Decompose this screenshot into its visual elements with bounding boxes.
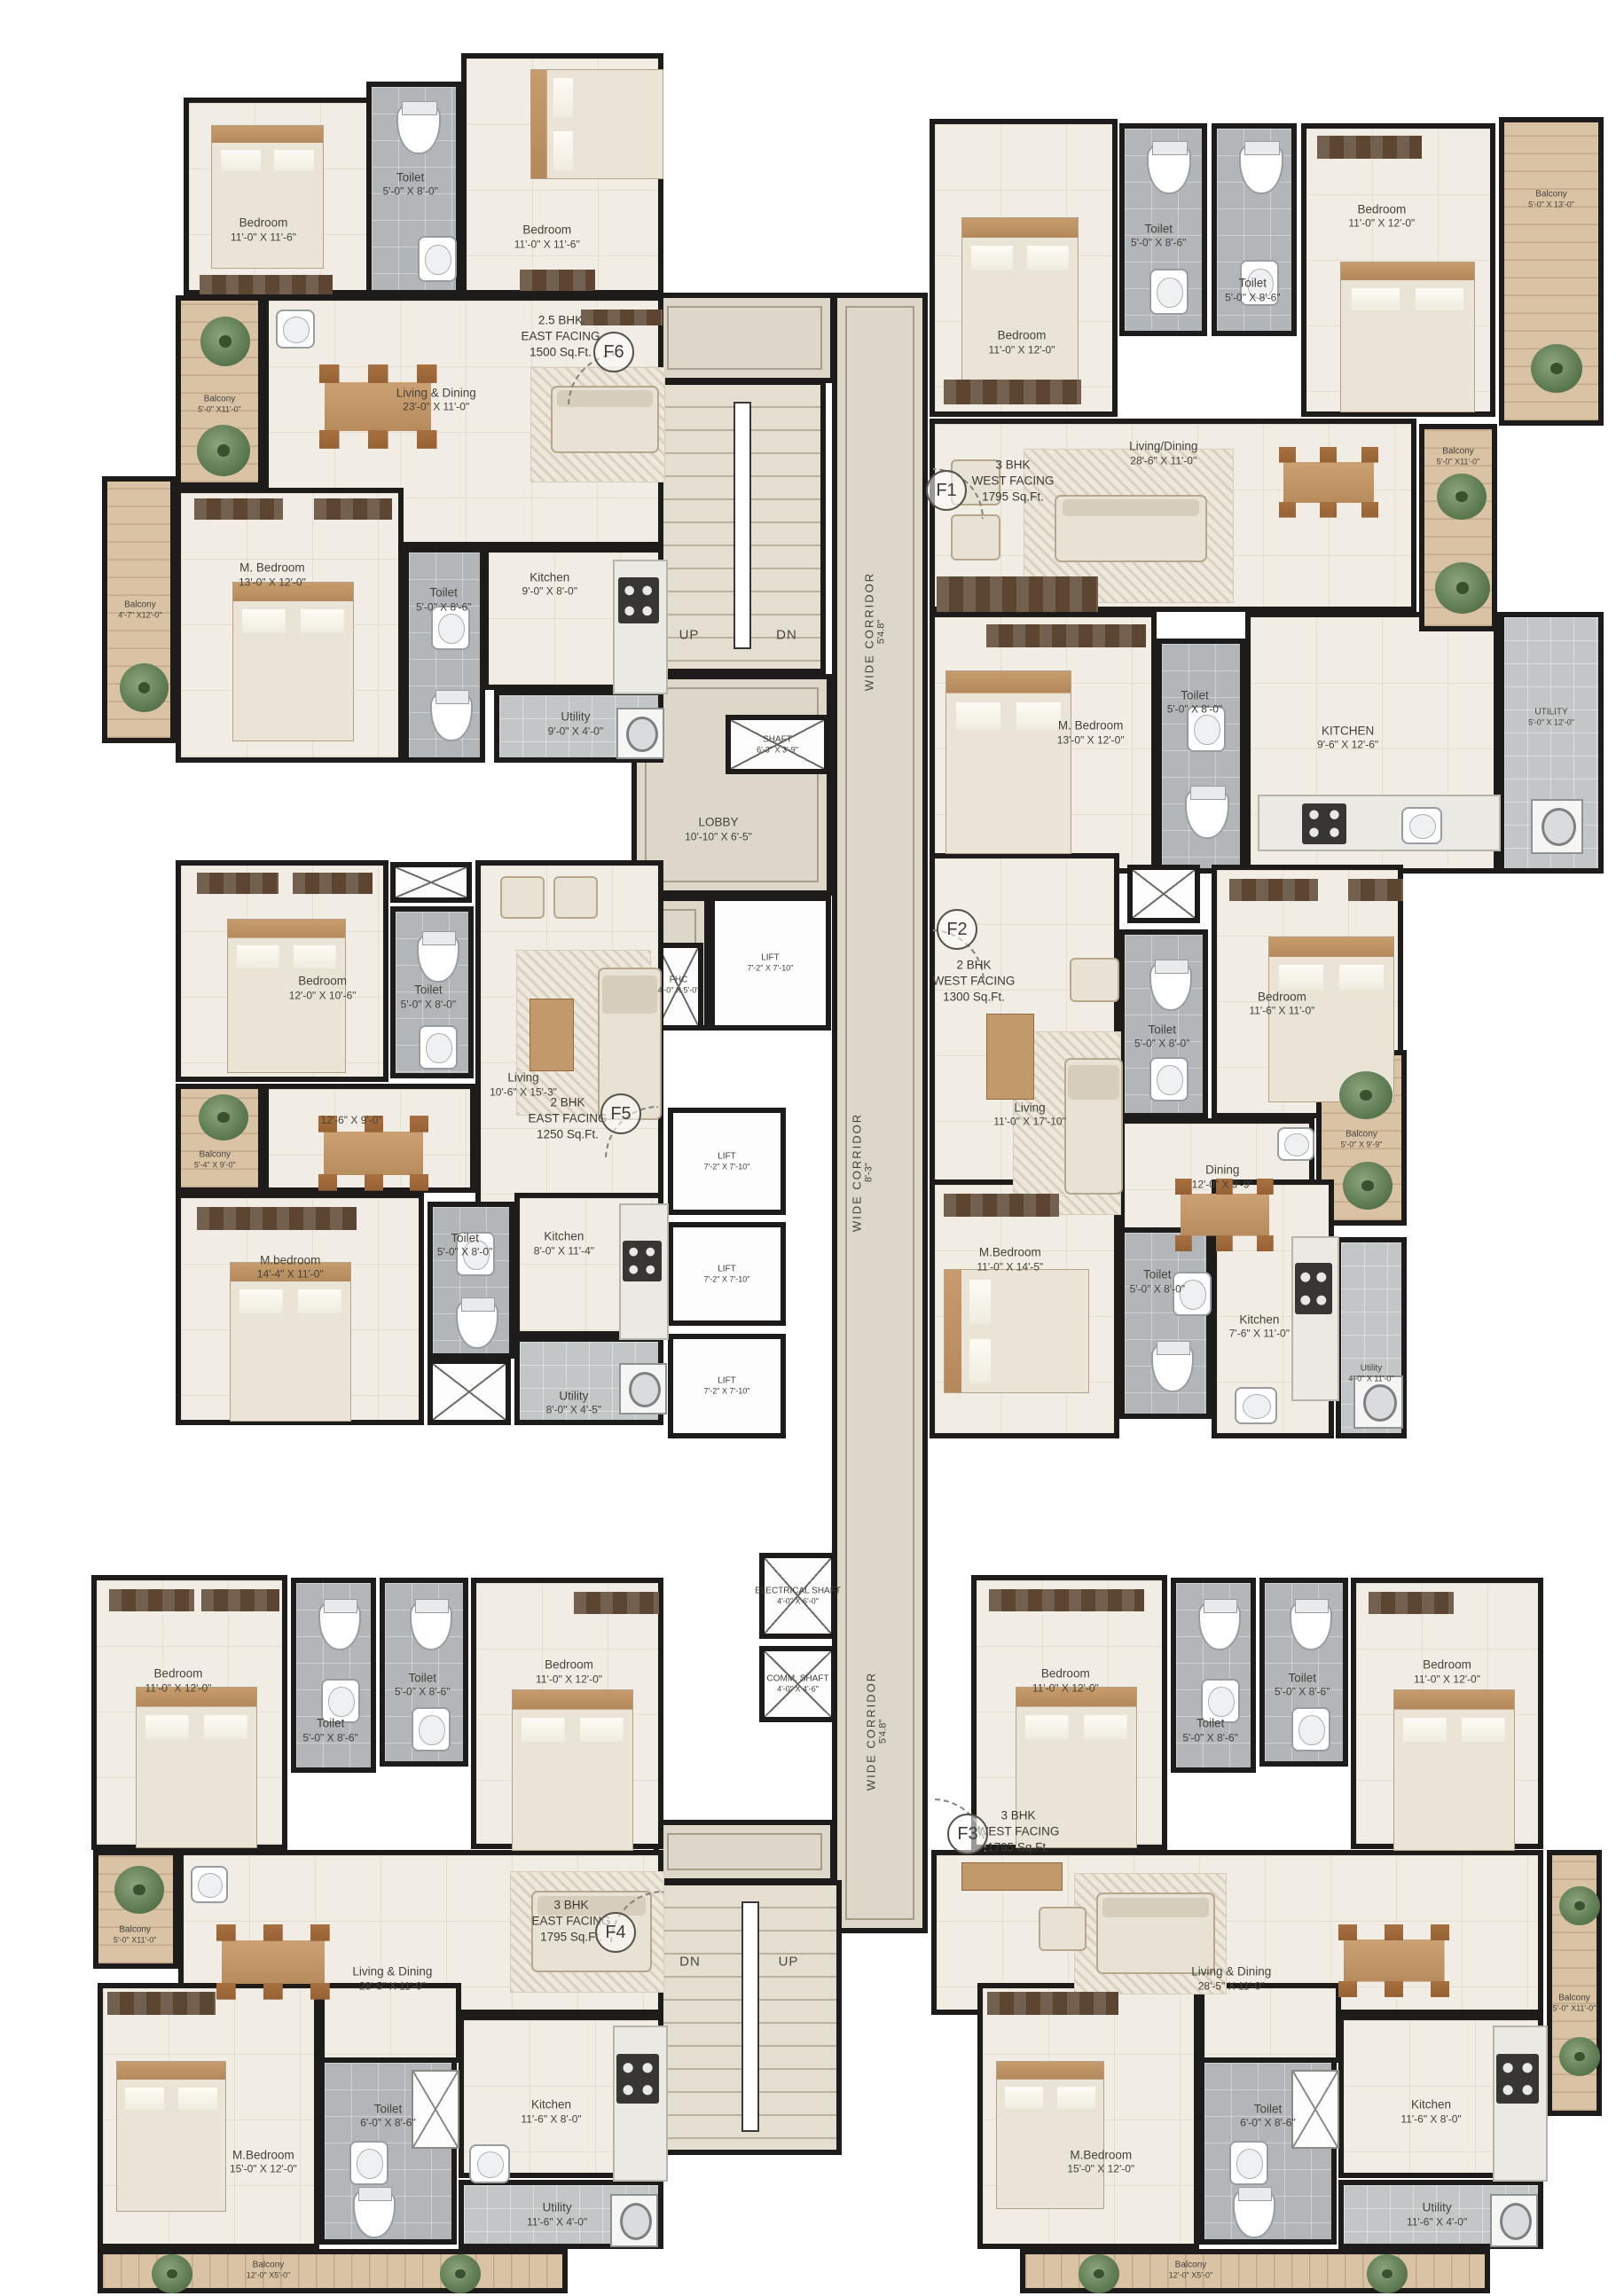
f5-toilet-1-name: Toilet — [401, 983, 456, 999]
plant-icon — [197, 425, 250, 476]
f2-toilet-2-dims: 5'-0" X 8'-0" — [1130, 1282, 1185, 1297]
corridor-top — [654, 293, 836, 383]
f2-balcony-name: Balcony — [1341, 1129, 1383, 1140]
plant-icon — [1339, 1071, 1393, 1119]
comm-shaft: COMM. SHAFT4'-0" X 4'-6" — [759, 1646, 836, 1722]
flat-f5-badge: F5 — [600, 1093, 641, 1134]
stairs-bottom — [655, 1880, 842, 2155]
f4-balcony-1: Balcony5'-0" X11'-0" — [93, 1850, 178, 1969]
bed-icon — [232, 582, 354, 741]
f1-bedroom-2-label: Bedroom11'-0" X 12'-0" — [1348, 201, 1415, 231]
f3-bedroom-2: Bedroom11'-0" X 12'-0" — [1351, 1578, 1543, 1849]
lift-2-name: LIFT — [704, 1263, 750, 1274]
up-label: UP — [679, 628, 700, 643]
counter-icon — [1493, 2026, 1548, 2182]
f4-bedroom-1-label: Bedroom11'-0" X 12'-0" — [145, 1666, 211, 1696]
f3-bedroom-1-dims: 11'-0" X 12'-0" — [1032, 1681, 1099, 1696]
f3-toilet-2-name: Toilet — [1275, 1670, 1330, 1686]
electrical-shaft-name: ELECTRICAL SHAFT — [755, 1585, 841, 1596]
f6-toilet-2-label: Toilet5'-0" X 8'-6" — [416, 585, 471, 615]
ward-icon — [197, 1207, 357, 1230]
f1-toilet-2-name: Toilet — [1225, 276, 1280, 292]
wc-icon — [1147, 141, 1191, 194]
f4-living-dining-label: Living & Dining28'-5" X 11'-0" — [352, 1964, 432, 1994]
plant-icon — [1435, 562, 1490, 614]
bed-icon — [116, 2061, 226, 2212]
ward-icon — [314, 498, 392, 520]
f2-toilet-1-name: Toilet — [1134, 1022, 1189, 1038]
f6-toilet-1-dims: 5'-0" X 8'-0" — [382, 185, 437, 200]
f6-m-bedroom-label: M. Bedroom13'-0" X 12'-0" — [239, 560, 306, 590]
f2-dining-label: Dining12'-0" X 9'-9" — [1192, 1163, 1253, 1192]
f4-bedroom-1-dims: 11'-0" X 12'-0" — [145, 1681, 211, 1696]
f3-living-dining-dims: 28'-5" X 11'-0" — [1191, 1979, 1271, 1994]
f3-toilet-2-label: Toilet5'-0" X 8'-6" — [1275, 1670, 1330, 1699]
plant-icon — [200, 317, 250, 366]
ward-icon — [293, 873, 373, 894]
f3-balcony-1-label: Balcony5'-0" X11'-0" — [1553, 1993, 1597, 2015]
f6-living-dining-dims: 23'-0" X 11'-0" — [396, 400, 476, 414]
f5-bedroom: Bedroom12'-0" X 10'-6" — [176, 860, 388, 1082]
f4-bedroom-2-dims: 11'-0" X 12'-0" — [536, 1673, 602, 1687]
f1-toilet-1-label: Toilet5'-0" X 8'-6" — [1131, 221, 1186, 250]
f5-dining-dims: 12'-6" X 9'-0" — [320, 1114, 381, 1128]
f3-kitchen-dims: 11'-6" X 8'-0" — [1400, 2112, 1461, 2127]
f4-kitchen: Kitchen11'-6" X 8'-0" — [459, 2015, 663, 2178]
lobby-dims: 10'-10" X 6'-5" — [685, 830, 752, 844]
f4-toilet-3-dims: 6'-0" X 8'-6" — [360, 2117, 415, 2131]
f6-bedroom-2: Bedroom11'-0" X 11'-6" — [461, 53, 663, 295]
f5-m-bedroom: M.bedroom14'-4" X 11'-0" — [176, 1193, 424, 1425]
bed-icon — [1393, 1689, 1515, 1851]
flat-f6-info: 2.5 BHKEAST FACING1500 Sq.Ft. — [521, 313, 600, 362]
f6-bedroom-2-label: Bedroom11'-0" X 11'-6" — [514, 222, 580, 251]
f6-toilet-2-name: Toilet — [416, 585, 471, 601]
f6-balcony-2-label: Balcony4'-7" X12'-0" — [118, 599, 161, 621]
stove-icon — [1302, 803, 1346, 844]
lift-top-name: LIFT — [748, 952, 794, 964]
flat-f5-info: 2 BHKEAST FACING1250 Sq.Ft. — [528, 1095, 607, 1144]
f2-toilet-1: Toilet5'-0" X 8'-0" — [1119, 929, 1208, 1118]
wood-icon — [530, 999, 574, 1071]
shower-icon — [412, 2070, 459, 2149]
f4-bedroom-2-label: Bedroom11'-0" X 12'-0" — [536, 1657, 602, 1686]
f6-bedroom-1-dims: 11'-0" X 11'-6" — [231, 231, 296, 245]
f3-bedroom-1-label: Bedroom11'-0" X 12'-0" — [1032, 1666, 1099, 1696]
f4-balcony-2-dims: 12'-0" X5'-0" — [247, 2271, 290, 2282]
sink-icon — [419, 1025, 458, 1070]
sofa-icon — [1055, 495, 1207, 562]
comm-shaft-name: COMM. SHAFT — [767, 1673, 829, 1685]
plant-icon — [1559, 1886, 1600, 1925]
f4-bedroom-1-name: Bedroom — [145, 1666, 211, 1682]
f2-m-bedroom: M.Bedroom11'-0" X 14'-5" — [930, 1179, 1119, 1438]
f3-toilet-2: Toilet5'-0" X 8'-6" — [1259, 1578, 1348, 1767]
ward-icon — [989, 1589, 1144, 1611]
f4-m-bedroom-dims: 15'-0" X 12'-0" — [230, 2163, 297, 2177]
f1-balcony-top-label: Balcony5'-0" X 13'-0" — [1528, 189, 1574, 211]
plant-icon — [1531, 344, 1582, 393]
f3-living-dining-label: Living & Dining28'-5" X 11'-0" — [1191, 1964, 1271, 1994]
f6-bedroom-1-label: Bedroom11'-0" X 11'-6" — [231, 215, 296, 245]
comm-shaft-label: COMM. SHAFT4'-0" X 4'-6" — [767, 1673, 829, 1696]
f4-utility-dims: 11'-6" X 4'-0" — [527, 2215, 587, 2229]
f2-living-name: Living — [993, 1100, 1066, 1116]
f6-kitchen-dims: 9'-0" X 8'-0" — [522, 585, 577, 599]
f6-balcony-2-dims: 4'-7" X12'-0" — [118, 610, 161, 621]
f1-kitchen-dims: 9'-6" X 12'-6" — [1317, 739, 1378, 753]
f3-utility-name: Utility — [1407, 2199, 1467, 2215]
f5-utility-name: Utility — [546, 1388, 601, 1404]
counter-icon — [1258, 795, 1501, 851]
f4-balcony-1-name: Balcony — [114, 1924, 157, 1936]
chair-icon — [500, 876, 545, 919]
ward-icon — [1369, 1592, 1454, 1614]
f3-balcony-2-dims: 12'-0" X5'-0" — [1169, 2271, 1212, 2282]
f5-bedroom-label: Bedroom12'-0" X 10'-6" — [289, 973, 357, 1002]
f1-bedroom-2: Bedroom11'-0" X 12'-0" — [1301, 123, 1495, 417]
f4-living-dining-name: Living & Dining — [352, 1964, 432, 1980]
chair-icon — [553, 876, 598, 919]
f1-kitchen: KITCHEN9'-6" X 12'-6" — [1245, 612, 1499, 874]
wc-icon — [318, 1599, 361, 1650]
f6-m-bedroom: M. Bedroom13'-0" X 12'-0" — [176, 488, 404, 763]
flat-f1-info: 3 BHKWEST FACING1795 Sq.Ft. — [972, 458, 1055, 506]
f6-bedroom-2-name: Bedroom — [514, 222, 580, 238]
f3-kitchen-name: Kitchen — [1400, 2097, 1461, 2113]
bed-icon — [136, 1687, 257, 1848]
lift-1-name: LIFT — [704, 1150, 750, 1162]
lift-2-label: LIFT7'-2" X 7'-10" — [704, 1263, 750, 1285]
f3-bedroom-2-name: Bedroom — [1414, 1657, 1480, 1673]
f4-toilet-1: Toilet5'-0" X 8'-6" — [291, 1578, 376, 1773]
f5-shaft-box — [390, 862, 472, 903]
ward-icon — [1348, 879, 1403, 901]
f2-kitchen-dims: 7'-6" X 11'-0" — [1229, 1328, 1290, 1342]
counter-icon — [1291, 1236, 1339, 1401]
f4-toilet-2: Toilet5'-0" X 8'-6" — [380, 1578, 468, 1767]
stove-icon — [1496, 2054, 1539, 2104]
f2-shaft-box — [1127, 865, 1200, 923]
f5-kitchen-label: Kitchen8'-0" X 11'-4" — [534, 1228, 594, 1258]
comm-shaft-dims: 4'-0" X 4'-6" — [767, 1685, 829, 1696]
f3-hall — [1199, 1983, 1341, 2063]
wc-icon — [1239, 141, 1283, 194]
f3-bedroom-2-dims: 11'-0" X 12'-0" — [1414, 1673, 1480, 1687]
f1-toilet-3-dims: 5'-0" X 8'-0" — [1167, 703, 1222, 717]
wc-icon — [353, 2187, 396, 2238]
f4-balcony-2-name: Balcony — [247, 2260, 290, 2271]
f1-balcony-right: Balcony5'-0" X11'-0" — [1419, 424, 1497, 631]
wc-icon — [1198, 1599, 1241, 1650]
plant-icon — [199, 1094, 248, 1140]
ward-icon — [574, 1592, 659, 1614]
f4-toilet-1-name: Toilet — [302, 1716, 357, 1732]
f2-living-dims: 11'-0" X 17'-10" — [993, 1116, 1066, 1130]
f1-toilet-3: Toilet5'-0" X 8'-0" — [1157, 639, 1245, 874]
ward-icon — [1229, 879, 1318, 901]
f6-balcony-2-name: Balcony — [118, 599, 161, 610]
f4-toilet-2-name: Toilet — [395, 1670, 450, 1686]
f3-balcony-2-label: Balcony12'-0" X5'-0" — [1169, 2260, 1212, 2282]
f2-m-bedroom-dims: 11'-0" X 14'-5" — [977, 1260, 1043, 1274]
f1-balcony-top-dims: 5'-0" X 13'-0" — [1528, 200, 1574, 211]
plant-icon — [1343, 1162, 1393, 1210]
f2-m-bedroom-name: M.Bedroom — [977, 1244, 1043, 1260]
f5-toilet-1-dims: 5'-0" X 8'-0" — [401, 998, 456, 1012]
counter-icon — [613, 2026, 668, 2182]
f3-toilet-3-label: Toilet6'-0" X 8'-6" — [1240, 2101, 1295, 2130]
bed-icon — [211, 125, 324, 269]
f2-toilet-1-dims: 5'-0" X 8'-0" — [1134, 1038, 1189, 1052]
lift-2-dims: 7'-2" X 7'-10" — [704, 1274, 750, 1285]
stove-icon — [1295, 1263, 1332, 1314]
f4-toilet-3: Toilet6'-0" X 8'-6" — [319, 2057, 457, 2245]
ward-icon — [109, 1589, 194, 1611]
wm-icon — [1490, 2194, 1538, 2247]
f4-balcony-1-label: Balcony5'-0" X11'-0" — [114, 1924, 157, 1947]
f2-kitchen-name: Kitchen — [1229, 1312, 1290, 1328]
ward-icon — [201, 1589, 279, 1611]
wc-icon — [1151, 1341, 1194, 1392]
f1-balcony-top-name: Balcony — [1528, 189, 1574, 200]
f5-utility-label: Utility8'-0" X 4'-5" — [546, 1388, 601, 1417]
f2-m-bedroom-label: M.Bedroom11'-0" X 14'-5" — [977, 1244, 1043, 1273]
wm-icon — [1531, 799, 1583, 854]
f6-kitchen-label: Kitchen9'-0" X 8'-0" — [522, 569, 577, 599]
f3-toilet-1-label: Toilet5'-0" X 8'-6" — [1182, 1716, 1237, 1745]
sofa-icon — [1096, 1892, 1215, 1974]
f1-kitchen-name: KITCHEN — [1317, 723, 1378, 739]
wc-icon — [417, 931, 459, 983]
f2-toilet-1-label: Toilet5'-0" X 8'-0" — [1134, 1022, 1189, 1051]
f6-toilet-1: Toilet5'-0" X 8'-0" — [366, 82, 461, 295]
chair-icon — [951, 514, 1000, 560]
f3-toilet-1-dims: 5'-0" X 8'-6" — [1182, 1731, 1237, 1745]
stove-icon — [616, 2054, 659, 2104]
f4-living-dining-dims: 28'-5" X 11'-0" — [352, 1979, 432, 1994]
ward-icon — [987, 1992, 1118, 2015]
f1-balcony-right-dims: 5'-0" X11'-0" — [1437, 458, 1480, 468]
f4-toilet-1-label: Toilet5'-0" X 8'-6" — [302, 1716, 357, 1745]
f6-bedroom-2-dims: 11'-0" X 11'-6" — [514, 238, 580, 252]
f4-utility-label: Utility11'-6" X 4'-0" — [527, 2199, 587, 2229]
wm-icon — [619, 1363, 667, 1414]
f3-m-bedroom-name: M.Bedroom — [1067, 2147, 1134, 2163]
f5-toilet-1-label: Toilet5'-0" X 8'-0" — [401, 983, 456, 1012]
f1-m-bedroom-name: M. Bedroom — [1057, 718, 1125, 734]
chair-icon — [1070, 958, 1119, 1002]
sink-icon — [1149, 1057, 1189, 1101]
wood-icon — [961, 1862, 1063, 1891]
f1-bedroom-1-dims: 11'-0" X 12'-0" — [989, 343, 1055, 357]
f5-toilet-1: Toilet5'-0" X 8'-0" — [390, 906, 474, 1078]
f3-m-bedroom-label: M.Bedroom15'-0" X 12'-0" — [1067, 2147, 1134, 2176]
wc-icon — [1185, 786, 1229, 839]
f4-hall — [319, 1983, 461, 2063]
wide-corridor-5-4-8--label: WIDE CORRIDOR5'4.8" — [863, 572, 887, 691]
sink-icon — [1229, 2141, 1268, 2185]
f5-kitchen: Kitchen8'-0" X 11'-4" — [514, 1193, 663, 1336]
wm-icon — [610, 2194, 658, 2247]
sofa-icon — [1064, 1058, 1123, 1195]
wide-corridor-8-3--label: WIDE CORRIDOR8'-3" — [851, 1113, 875, 1232]
sink-icon — [1401, 807, 1442, 844]
f3-kitchen: Kitchen11'-6" X 8'-0" — [1338, 2015, 1543, 2178]
f5-m-bedroom-label: M.bedroom14'-4" X 11'-0" — [257, 1252, 324, 1281]
f4-toilet-2-dims: 5'-0" X 8'-6" — [395, 1686, 450, 1700]
f1-utility-label: UTILITY5'-0" X 12'-0" — [1528, 707, 1574, 729]
fhc-dims: 4'-0" X 5'-0" — [658, 985, 700, 996]
f1-utility-dims: 5'-0" X 12'-0" — [1528, 718, 1574, 729]
f5-kitchen-dims: 8'-0" X 11'-4" — [534, 1244, 594, 1258]
wc-icon — [1290, 1599, 1332, 1650]
shaft-top-dims: 6'-3" X 3'-9" — [757, 745, 798, 756]
f6-balcony-1-name: Balcony — [198, 394, 241, 405]
flat-f4-badge: F4 — [595, 1912, 636, 1953]
f1-toilet-1-name: Toilet — [1131, 221, 1186, 237]
corridor-bottom — [654, 1820, 836, 1884]
f3-toilet-3-dims: 6'-0" X 8'-6" — [1240, 2117, 1295, 2131]
lobby-name: LOBBY — [685, 814, 752, 830]
wood-icon — [986, 1014, 1034, 1100]
f3-toilet-2-dims: 5'-0" X 8'-6" — [1275, 1686, 1330, 1700]
flat-f6-badge: F6 — [593, 332, 634, 372]
wc-icon — [1149, 960, 1192, 1011]
f3-m-bedroom: M.Bedroom15'-0" X 12'-0" — [977, 1983, 1199, 2249]
f4-kitchen-name: Kitchen — [521, 2097, 581, 2113]
f1-bedroom-2-name: Bedroom — [1348, 201, 1415, 217]
sink-icon — [1277, 1127, 1314, 1161]
bedh-icon — [944, 1269, 1089, 1393]
f1-bedroom-2-dims: 11'-0" X 12'-0" — [1348, 217, 1415, 231]
f1-bedroom-1-name: Bedroom — [989, 328, 1055, 344]
f5-toilet-2-dims: 5'-0" X 8'-0" — [437, 1246, 492, 1260]
f3-toilet-3: Toilet6'-0" X 8'-6" — [1199, 2057, 1337, 2245]
dining-icon — [208, 1924, 337, 2000]
f4-m-bedroom: M.Bedroom15'-0" X 12'-0" — [98, 1983, 319, 2249]
bed-icon — [1340, 262, 1475, 412]
f6-kitchen-name: Kitchen — [522, 569, 577, 585]
bed-icon — [945, 670, 1071, 854]
lobby-label: LOBBY10'-10" X 6'-5" — [685, 814, 752, 843]
f4-toilet-3-name: Toilet — [360, 2101, 415, 2117]
lift-1-label: LIFT7'-2" X 7'-10" — [704, 1150, 750, 1172]
f5-balcony-label: Balcony5'-4" X 9'-0" — [194, 1149, 236, 1172]
f3-kitchen-label: Kitchen11'-6" X 8'-0" — [1400, 2097, 1461, 2127]
f3-balcony-2: Balcony12'-0" X5'-0" — [1020, 2249, 1490, 2293]
f4-kitchen-label: Kitchen11'-6" X 8'-0" — [521, 2097, 581, 2127]
f4-balcony-2-label: Balcony12'-0" X5'-0" — [247, 2260, 290, 2282]
f2-bedroom-label: Bedroom11'-6" X 11'-0" — [1249, 989, 1314, 1018]
f1-kitchen-label: KITCHEN9'-6" X 12'-6" — [1317, 723, 1378, 752]
f6-living-dining-name: Living & Dining — [396, 385, 476, 401]
bed-icon — [996, 2061, 1104, 2209]
f1-living-dining: Living/Dining28'-6" X 11'-0" — [930, 419, 1416, 612]
shaft-top: SHAFT6'-3" X 3'-9" — [726, 715, 829, 774]
stove-icon — [618, 577, 659, 623]
f4-m-bedroom-name: M.Bedroom — [230, 2147, 297, 2163]
plant-icon — [1079, 2254, 1119, 2293]
f5-m-bedroom-dims: 14'-4" X 11'-0" — [257, 1267, 324, 1281]
f2-utility-dims: 4'-0" X 11'-0" — [1348, 1375, 1393, 1385]
f6-living-dining-label: Living & Dining23'-0" X 11'-0" — [396, 385, 476, 414]
f2-dining-name: Dining — [1192, 1163, 1253, 1179]
f3-toilet-1: Toilet5'-0" X 8'-6" — [1171, 1578, 1256, 1773]
wc-icon — [456, 1297, 498, 1349]
dining-icon — [1272, 447, 1385, 518]
f2-bedroom-name: Bedroom — [1249, 989, 1314, 1005]
f6-balcony-1: Balcony5'-0" X11'-0" — [176, 295, 263, 488]
sink-icon — [1235, 1387, 1277, 1424]
f6-bedroom-1-name: Bedroom — [231, 215, 296, 231]
bedh-icon — [530, 69, 663, 179]
f6-balcony-2: Balcony4'-7" X12'-0" — [102, 476, 176, 743]
f1-balcony-top: Balcony5'-0" X 13'-0" — [1499, 117, 1604, 426]
f5-balcony: Balcony5'-4" X 9'-0" — [176, 1084, 263, 1193]
f6-utility: Utility9'-0" X 4'-0" — [494, 690, 663, 763]
f3-bedroom-1-name: Bedroom — [1032, 1666, 1099, 1682]
f1-toilet-1: Toilet5'-0" X 8'-6" — [1119, 123, 1207, 336]
f2-dining-dims: 12'-0" X 9'-9" — [1192, 1178, 1253, 1192]
f5-shower — [428, 1359, 511, 1425]
f1-toilet-1-dims: 5'-0" X 8'-6" — [1131, 237, 1186, 251]
f3-bedroom-2-label: Bedroom11'-0" X 12'-0" — [1414, 1657, 1480, 1686]
f5-balcony-name: Balcony — [194, 1149, 236, 1161]
f1-balcony-right-name: Balcony — [1437, 446, 1480, 458]
plant-icon — [1437, 474, 1487, 520]
lift-3: LIFT7'-2" X 7'-10" — [668, 1334, 786, 1438]
f4-m-bedroom-label: M.Bedroom15'-0" X 12'-0" — [230, 2147, 297, 2176]
f3-m-bedroom-dims: 15'-0" X 12'-0" — [1067, 2163, 1134, 2177]
f4-bedroom-2: Bedroom11'-0" X 12'-0" — [471, 1578, 663, 1849]
f2-balcony-label: Balcony5'-0" X 9'-9" — [1341, 1129, 1383, 1151]
f5-dining: 12'-6" X 9'-0" — [263, 1084, 475, 1193]
ward-icon — [1317, 136, 1422, 159]
f1-utility-name: UTILITY — [1528, 707, 1574, 718]
lift-3-label: LIFT7'-2" X 7'-10" — [704, 1375, 750, 1398]
ward-icon — [937, 576, 1098, 612]
f3-balcony-1-dims: 5'-0" X11'-0" — [1553, 2004, 1597, 2015]
lift-3-name: LIFT — [704, 1375, 750, 1387]
f6-toilet-2-dims: 5'-0" X 8'-6" — [416, 600, 471, 615]
ward-icon — [200, 275, 333, 294]
f4-utility-name: Utility — [527, 2199, 587, 2215]
f1-living-dining-name: Living/Dining — [1129, 438, 1197, 454]
plant-icon — [152, 2254, 192, 2293]
f3-living-dining-name: Living & Dining — [1191, 1964, 1271, 1980]
wc-icon — [1233, 2187, 1275, 2238]
lift-3-dims: 7'-2" X 7'-10" — [704, 1387, 750, 1398]
f2-toilet-2-name: Toilet — [1130, 1267, 1185, 1283]
shaft-top-label: SHAFT6'-3" X 3'-9" — [757, 733, 798, 756]
sink-icon — [1149, 269, 1189, 315]
dn-label: DN — [776, 628, 797, 643]
ward-icon — [194, 498, 283, 520]
sink-icon — [349, 2141, 388, 2185]
sink-icon — [191, 1866, 228, 1903]
f4-balcony-2: Balcony12'-0" X5'-0" — [98, 2249, 568, 2293]
f3-balcony-1-name: Balcony — [1553, 1993, 1597, 2004]
f2-utility: Utility4'-0" X 11'-0" — [1336, 1237, 1407, 1438]
shower-icon — [1291, 2070, 1339, 2149]
f3-balcony-2-name: Balcony — [1169, 2260, 1212, 2271]
f5-bedroom-name: Bedroom — [289, 973, 357, 989]
f5-m-bedroom-name: M.bedroom — [257, 1252, 324, 1268]
lift-1: LIFT7'-2" X 7'-10" — [668, 1108, 786, 1215]
f4-utility: Utility11'-6" X 4'-0" — [459, 2180, 663, 2249]
f2-living-label: Living11'-0" X 17'-10" — [993, 1100, 1066, 1129]
